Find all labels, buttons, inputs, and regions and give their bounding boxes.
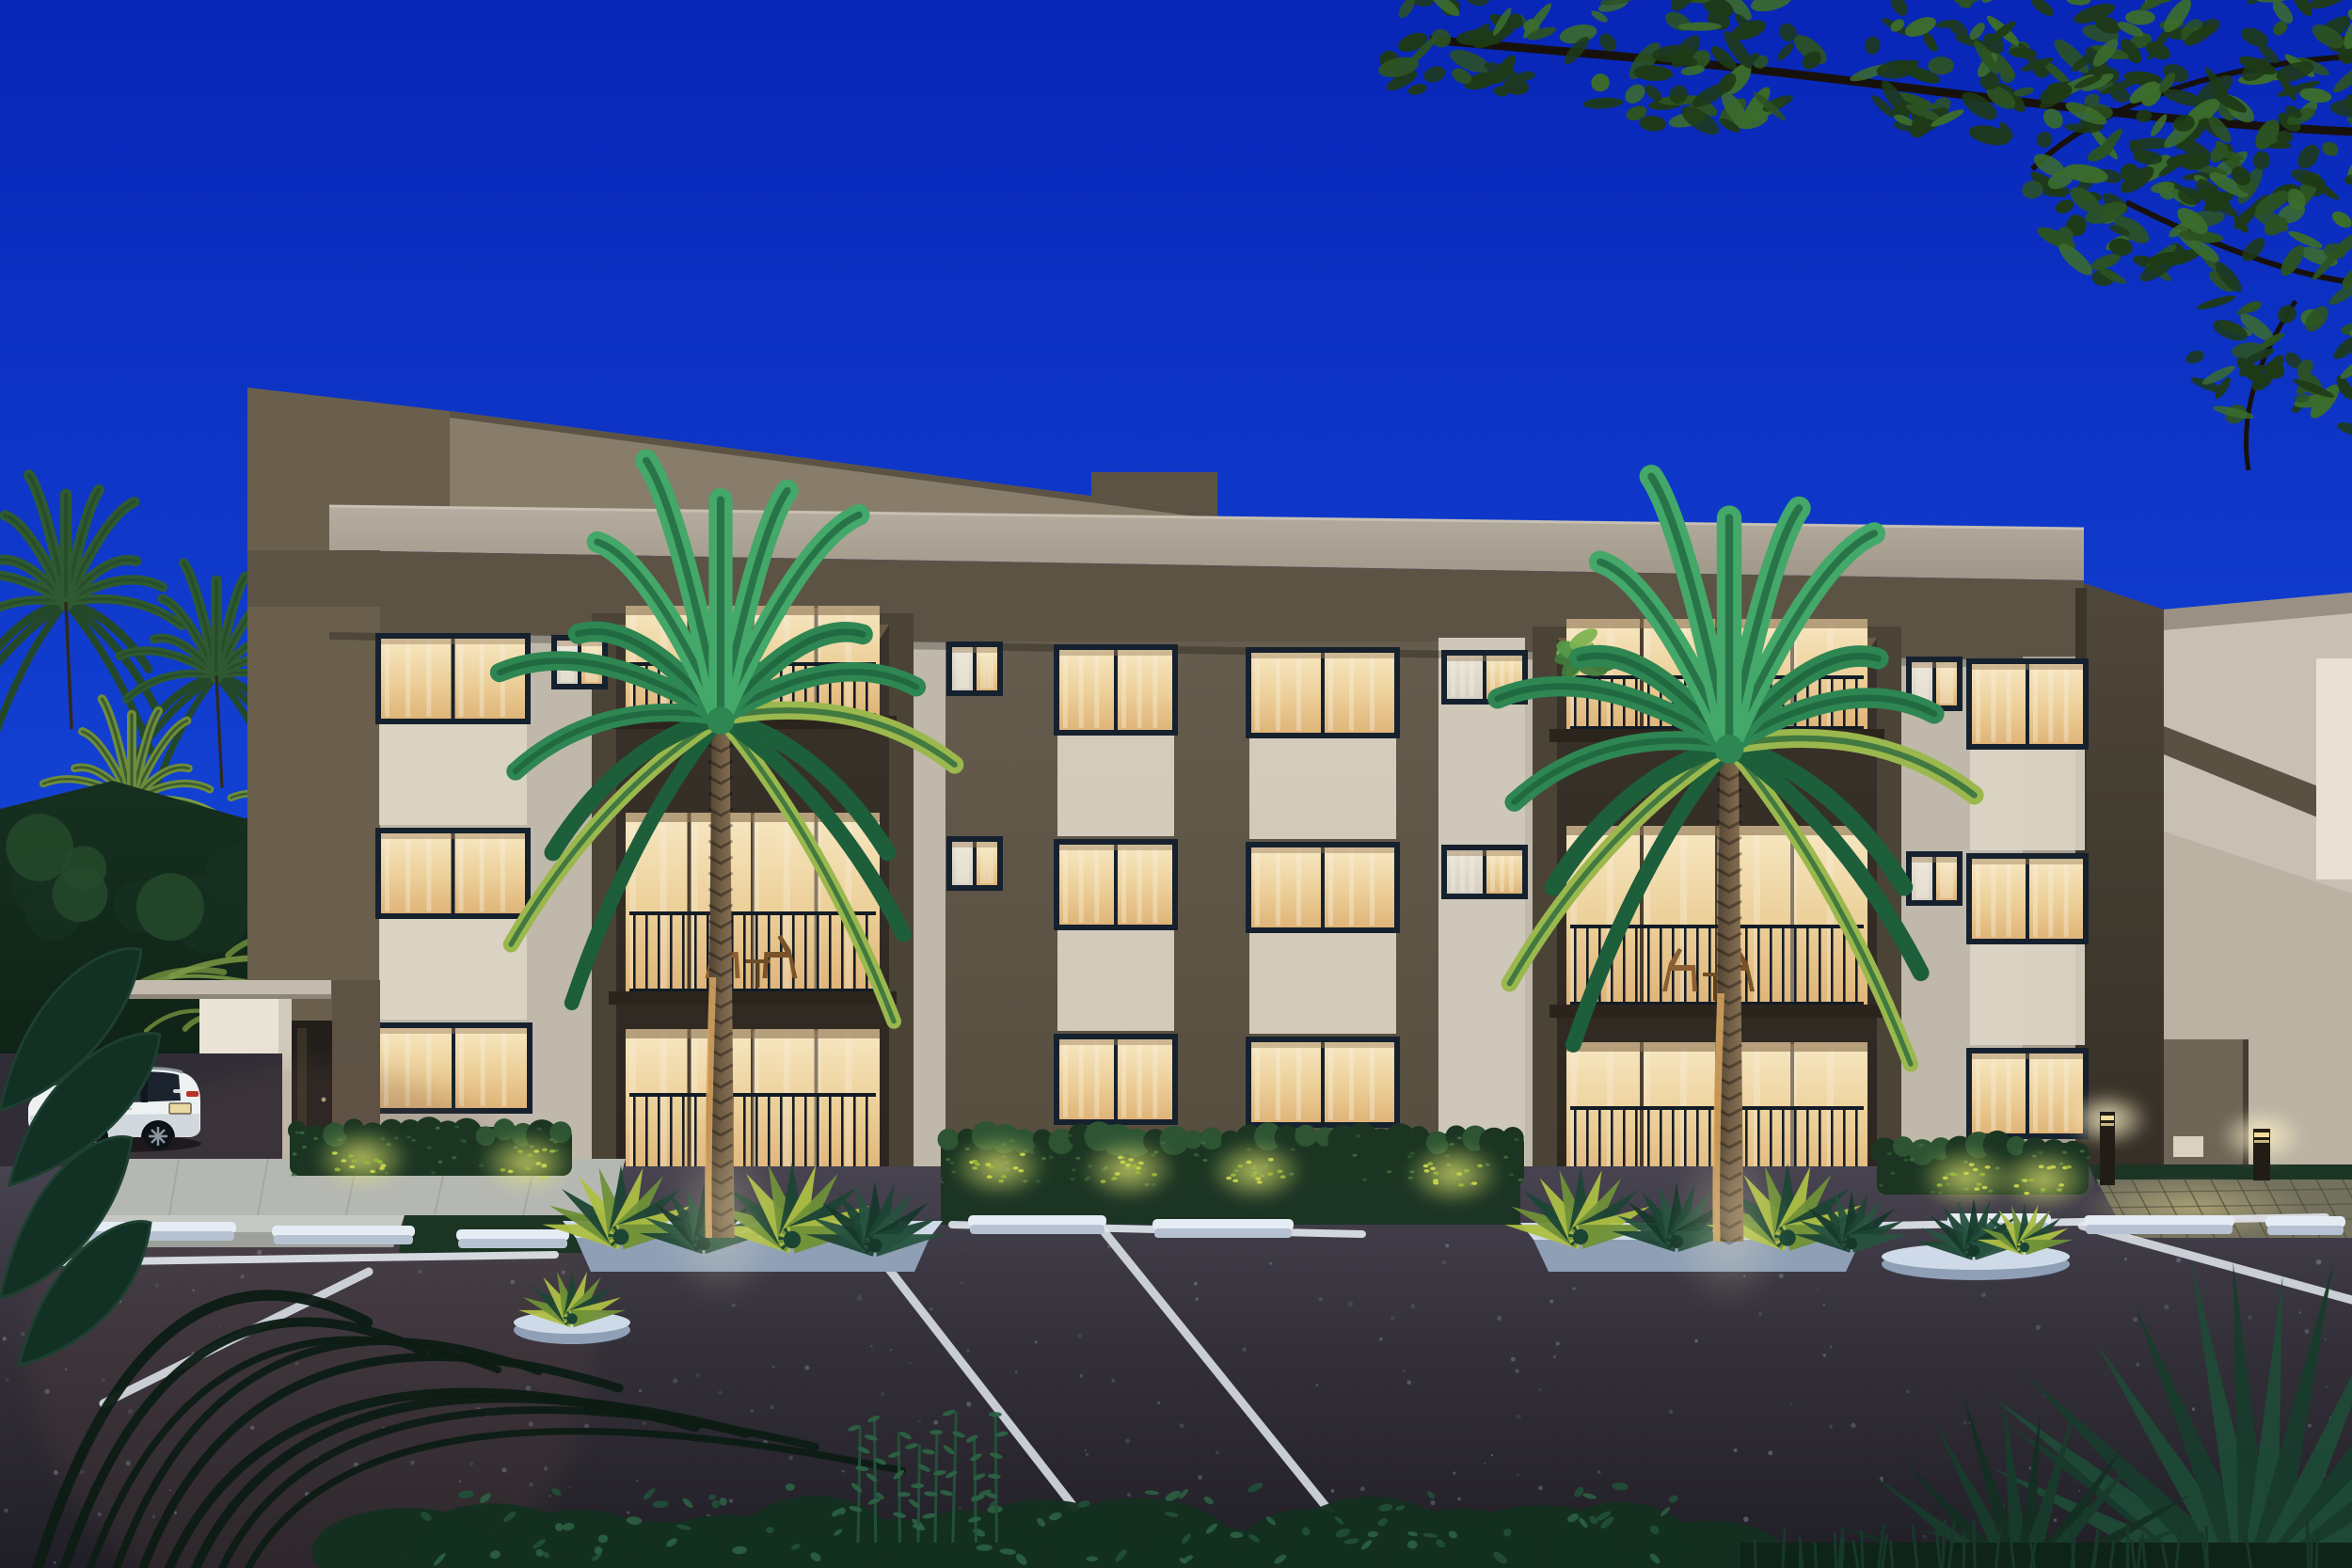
asphalt-speckle xyxy=(5,1377,8,1381)
door-mullion xyxy=(1640,826,1644,1005)
asphalt-speckle xyxy=(54,1561,56,1564)
asphalt-speckle xyxy=(2054,1518,2057,1521)
window-pane xyxy=(1251,1042,1321,1122)
asphalt-speckle xyxy=(2325,1338,2328,1341)
asphalt-speckle xyxy=(54,1470,58,1475)
asphalt-speckle xyxy=(1880,1477,1883,1481)
window-mullion xyxy=(973,647,977,690)
curtain-streak xyxy=(1276,849,1280,926)
curtain-streak xyxy=(1079,1041,1084,1117)
asphalt-speckle xyxy=(696,1373,700,1377)
undergrowth-clump xyxy=(6,814,73,881)
grass-blade xyxy=(2206,1526,2207,1568)
hedge-leaf xyxy=(1202,1159,1207,1162)
asphalt-speckle xyxy=(80,1470,85,1475)
asphalt-speckle xyxy=(1410,1304,1415,1308)
asphalt-speckle xyxy=(1402,1370,1405,1372)
lit-leaf xyxy=(351,1159,357,1163)
car-license-plate xyxy=(169,1103,191,1114)
balcony-railing-bar xyxy=(645,1096,648,1170)
hedge-leaf xyxy=(1457,1136,1462,1139)
lit-leaf xyxy=(1976,1182,1981,1186)
lit-leaf xyxy=(1974,1187,1979,1191)
hedge-leaf xyxy=(1913,1151,1917,1154)
asphalt-speckle xyxy=(732,1304,736,1307)
asphalt-speckle xyxy=(789,1456,793,1460)
asphalt-speckle xyxy=(102,1378,105,1382)
curtain-streak xyxy=(1370,849,1375,926)
balcony-railing-bar xyxy=(841,914,844,990)
hedge-bump xyxy=(1295,1125,1317,1148)
curtain-streak xyxy=(1945,859,1949,898)
balcony-railing-bar xyxy=(658,914,660,990)
hedge-leaf xyxy=(1899,1153,1903,1156)
lit-leaf xyxy=(975,1163,980,1166)
window-w-f3 xyxy=(1246,1037,1400,1128)
curtain-streak xyxy=(1451,852,1455,892)
wheel-stop-face xyxy=(970,1225,1104,1234)
lit-leaf xyxy=(535,1162,541,1165)
glass-top-shade xyxy=(626,813,880,822)
asphalt-speckle xyxy=(1111,1379,1115,1383)
window-top-shade xyxy=(380,1028,527,1034)
curtain-streak xyxy=(2048,1055,2053,1132)
curtain-streak xyxy=(985,649,990,689)
spandrel-panel xyxy=(1970,943,2085,1045)
asphalt-speckle xyxy=(126,1461,131,1465)
asphalt-speckle xyxy=(511,1279,516,1284)
lit-leaf xyxy=(1423,1169,1429,1173)
balcony-table-leg xyxy=(756,963,760,988)
asphalt-speckle xyxy=(1077,1334,1082,1338)
asphalt-speckle xyxy=(4,1509,8,1513)
hedge-leaf xyxy=(1352,1154,1357,1157)
lit-leaf xyxy=(2013,1184,2019,1188)
lit-leaf xyxy=(1477,1164,1483,1168)
grass-blade xyxy=(1862,1530,1863,1568)
window-mullion xyxy=(1321,653,1325,733)
curtain-streak xyxy=(2033,1055,2038,1132)
lit-leaf xyxy=(528,1153,533,1157)
balcony-railing-bar xyxy=(1647,927,1650,1003)
balcony-railing-bar xyxy=(866,1096,868,1170)
sprig-leaf xyxy=(898,1492,911,1497)
grass-blade xyxy=(1755,1539,1756,1568)
hedge-bump xyxy=(1871,1137,1899,1164)
hedge-leaf xyxy=(1503,1156,1508,1159)
asphalt-speckle xyxy=(193,1290,195,1291)
lit-leaf xyxy=(1456,1172,1462,1176)
lit-leaf xyxy=(541,1164,547,1167)
curtain-streak xyxy=(426,641,431,717)
grass-blade xyxy=(1963,1532,1964,1568)
balcony-railing-bar xyxy=(829,914,832,990)
curtain-streak xyxy=(480,835,485,911)
lit-leaf xyxy=(501,1168,506,1172)
asphalt-speckle xyxy=(21,1332,25,1337)
lit-leaf xyxy=(2058,1183,2064,1187)
window-mullion xyxy=(1321,1042,1325,1122)
window-w-i2 xyxy=(1966,853,2089,944)
balcony-railing-bar xyxy=(780,1096,783,1170)
curtain-streak xyxy=(964,649,969,689)
asphalt-speckle xyxy=(636,1480,638,1481)
asphalt-speckle xyxy=(44,1389,49,1394)
lit-leaf xyxy=(348,1154,354,1158)
lit-leaf xyxy=(1135,1171,1140,1175)
hedge-uplight-glow xyxy=(1207,1139,1305,1203)
asphalt-speckle xyxy=(842,1470,845,1473)
window-w-i1 xyxy=(1966,658,2089,750)
hedge-leaf xyxy=(537,1128,542,1131)
grass-blade xyxy=(1800,1540,1801,1568)
hedge-leaf xyxy=(1518,1179,1523,1181)
window-mullion xyxy=(1483,656,1486,699)
hedge-leaf xyxy=(411,1139,416,1142)
grass-blade xyxy=(1815,1543,1816,1568)
lit-leaf xyxy=(1120,1161,1125,1164)
curtain-streak xyxy=(1976,861,1980,937)
asphalt-speckle xyxy=(169,1489,171,1491)
asphalt-speckle xyxy=(1515,1369,1519,1373)
asphalt-speckle xyxy=(1195,1298,1198,1301)
window-pane xyxy=(455,639,526,719)
asphalt-speckle xyxy=(966,1402,971,1406)
window-top-shade xyxy=(1059,650,1172,656)
fan-palm-base xyxy=(1846,1238,1857,1249)
asphalt-speckle xyxy=(2036,1324,2041,1329)
window-mullion xyxy=(1932,857,1936,900)
balcony-railing-bar xyxy=(633,1096,636,1170)
balcony-railing-bar xyxy=(670,1096,673,1170)
undergrowth-clump xyxy=(136,873,204,941)
asphalt-speckle xyxy=(1391,1315,1395,1320)
car-taillight xyxy=(186,1091,199,1097)
lit-leaf xyxy=(1001,1175,1007,1179)
lit-leaf xyxy=(972,1160,977,1164)
asphalt-speckle xyxy=(2124,1258,2127,1260)
lit-leaf xyxy=(2028,1179,2034,1182)
curtain-streak xyxy=(1094,1041,1099,1117)
lit-leaf xyxy=(549,1149,555,1153)
window-pane xyxy=(1251,847,1321,927)
window-mullion xyxy=(452,833,455,913)
curtain-streak xyxy=(2064,861,2069,937)
window-top-shade xyxy=(1059,1039,1172,1045)
window-pane xyxy=(1325,653,1394,733)
asphalt-speckle xyxy=(857,1295,863,1301)
balcony-railing-bar xyxy=(1806,927,1809,1003)
balcony-railing-bar xyxy=(645,914,648,990)
window-w-a2 xyxy=(375,828,531,919)
bollard-lit-band xyxy=(2254,1132,2269,1137)
curtain-fold xyxy=(784,815,790,990)
asphalt-speckle xyxy=(1330,1489,1334,1493)
curtain-streak xyxy=(989,844,993,883)
balcony-railing-bar xyxy=(817,914,819,990)
lit-leaf xyxy=(332,1151,338,1155)
window-w-d2 xyxy=(946,836,1003,891)
asphalt-speckle xyxy=(804,1366,809,1370)
glass-top-shade xyxy=(626,1029,880,1038)
curtain-streak xyxy=(1094,847,1099,923)
lit-leaf xyxy=(541,1176,547,1180)
palm-crown-core xyxy=(1715,735,1744,764)
lit-leaf xyxy=(1020,1153,1025,1157)
asphalt-speckle xyxy=(1316,1384,1318,1386)
balcony-railing-bar xyxy=(1574,927,1577,1003)
lit-leaf xyxy=(1257,1180,1263,1184)
curtain-streak xyxy=(1948,664,1953,704)
asphalt-speckle xyxy=(1319,1297,1324,1302)
lit-leaf xyxy=(1427,1162,1433,1165)
hedge-leaf xyxy=(1879,1184,1883,1187)
hedge-uplight-glow xyxy=(950,1134,1048,1198)
lit-leaf xyxy=(1280,1175,1286,1179)
undergrowth-clump xyxy=(53,866,108,922)
bollard-lit-band xyxy=(2101,1116,2114,1120)
spandrel-panel xyxy=(1970,749,2085,850)
curtain-streak xyxy=(1976,1055,1980,1132)
balcony-railing-bar xyxy=(804,1096,807,1170)
balcony-slab xyxy=(609,991,897,1005)
asphalt-speckle xyxy=(584,1423,589,1428)
neighbor-white-wall xyxy=(2316,658,2352,879)
asphalt-speckle xyxy=(1572,1287,1575,1290)
curtain-streak xyxy=(459,835,464,911)
fan-palm-base xyxy=(2020,1243,2029,1252)
asphalt-speckle xyxy=(1963,1420,1967,1425)
curtain-streak xyxy=(426,835,431,911)
lit-leaf xyxy=(2039,1165,2044,1169)
asphalt-speckle xyxy=(1851,1423,1856,1429)
lit-leaf xyxy=(1985,1165,1991,1169)
curtain-streak xyxy=(1470,852,1474,892)
curtain-streak xyxy=(1940,859,1945,898)
asphalt-speckle xyxy=(469,1462,473,1465)
curtain-streak xyxy=(1255,1044,1260,1120)
curtain-streak xyxy=(2007,666,2011,742)
curtain-streak xyxy=(1063,1041,1068,1117)
lit-leaf xyxy=(1132,1164,1137,1168)
window-top-shade xyxy=(1059,845,1172,850)
hedge-bump xyxy=(1200,1127,1223,1149)
lit-leaf xyxy=(1128,1158,1134,1162)
curtain-streak xyxy=(2048,666,2053,742)
lit-leaf xyxy=(1246,1161,1251,1164)
curtain-streak xyxy=(1121,652,1126,728)
hedge-leaf xyxy=(437,1161,442,1164)
asphalt-speckle xyxy=(1830,1346,1832,1348)
curtain-streak xyxy=(1328,849,1333,926)
asphalt-speckle xyxy=(1269,1262,1272,1265)
asphalt-speckle xyxy=(2248,1316,2251,1320)
hedge-leaf xyxy=(1904,1159,1909,1162)
lit-leaf xyxy=(2046,1166,2052,1170)
curtain-streak xyxy=(1152,1041,1157,1117)
curtain-streak xyxy=(1470,657,1474,697)
asphalt-speckle xyxy=(881,1392,885,1397)
curtain-streak xyxy=(481,1030,485,1106)
lit-leaf xyxy=(1458,1183,1464,1187)
hedge-leaf xyxy=(1362,1179,1367,1181)
asphalt-speckle xyxy=(1823,1304,1825,1306)
asphalt-speckle xyxy=(890,1349,893,1352)
hedge-leaf xyxy=(1910,1158,1915,1161)
lit-leaf xyxy=(1138,1162,1144,1165)
curtain-streak xyxy=(1137,1041,1142,1117)
curtain-streak xyxy=(1976,666,1980,742)
asphalt-speckle xyxy=(526,1386,532,1391)
asphalt-speckle xyxy=(1829,1425,1833,1429)
asphalt-speckle xyxy=(2164,1305,2169,1309)
hedge-leaf xyxy=(1356,1134,1360,1137)
asphalt-speckle xyxy=(959,1507,961,1510)
asphalt-speckle xyxy=(1538,1388,1541,1391)
curtain-streak xyxy=(1509,852,1514,892)
window-top-shade xyxy=(381,639,525,644)
curtain-streak xyxy=(1296,1044,1301,1120)
lit-leaf xyxy=(2024,1192,2029,1196)
window-top-shade xyxy=(1447,850,1522,856)
lit-leaf xyxy=(377,1160,383,1164)
window-mullion xyxy=(2026,1053,2029,1133)
asphalt-speckle xyxy=(1538,1486,1543,1491)
fan-palm-base xyxy=(1968,1245,1979,1257)
balcony-railing-bar xyxy=(817,1096,819,1170)
asphalt-speckle xyxy=(544,1466,548,1470)
balcony-railing-bar xyxy=(768,1096,771,1170)
door-mullion xyxy=(688,813,691,991)
asphalt-speckle xyxy=(930,1307,933,1311)
lit-leaf xyxy=(1430,1166,1436,1170)
lit-leaf xyxy=(2066,1165,2072,1169)
hedge-leaf xyxy=(1887,1152,1892,1155)
asphalt-speckle xyxy=(1669,1410,1674,1415)
curtain-streak xyxy=(385,835,389,911)
hedge-leaf xyxy=(460,1139,465,1142)
curtain-streak xyxy=(1370,1044,1375,1120)
curtain-streak xyxy=(1991,666,1995,742)
lit-leaf xyxy=(1231,1173,1236,1177)
curtain-streak xyxy=(2033,666,2038,742)
asphalt-speckle xyxy=(910,1362,912,1364)
asphalt-speckle xyxy=(1694,1339,1698,1343)
hedge-leaf xyxy=(1067,1134,1072,1137)
curtain-streak xyxy=(1137,652,1142,728)
curtain-streak xyxy=(956,649,961,689)
asphalt-speckle xyxy=(1597,1471,1600,1474)
hedge-leaf xyxy=(1919,1144,1924,1147)
balcony-railing-bar xyxy=(682,914,685,990)
entry-canopy-slab-shadow xyxy=(129,994,331,999)
window-top-shade xyxy=(1912,857,1957,863)
balcony-railing-bar xyxy=(633,914,636,990)
asphalt-speckle xyxy=(218,1326,220,1328)
lit-leaf xyxy=(1226,1177,1232,1180)
hedge-leaf xyxy=(1514,1138,1518,1141)
asphalt-speckle xyxy=(1817,1289,1819,1291)
bollard-lit-band xyxy=(2101,1123,2114,1126)
balcony-railing-bar xyxy=(1831,927,1834,1003)
lit-leaf xyxy=(1943,1177,1948,1180)
asphalt-speckle xyxy=(65,1369,67,1370)
asphalt-speckle xyxy=(98,1513,102,1516)
window-mullion xyxy=(1114,845,1118,925)
asphalt-speckle xyxy=(643,1421,645,1424)
balcony-railing-bar xyxy=(743,914,746,990)
palm-crown-core xyxy=(707,707,734,735)
window-pane xyxy=(381,833,452,913)
asphalt-speckle xyxy=(1430,1500,1435,1505)
balcony-railing-top-rail xyxy=(629,1093,876,1097)
curtain-streak xyxy=(1296,655,1301,731)
hedge-leaf xyxy=(2086,1156,2090,1159)
hedge-leaf xyxy=(302,1146,307,1148)
curtain-streak xyxy=(1079,847,1084,923)
curtain-streak xyxy=(1152,652,1157,728)
curtain-streak xyxy=(980,649,985,689)
curtain-streak xyxy=(1991,1055,1995,1132)
window-mullion xyxy=(1932,662,1936,705)
lit-leaf xyxy=(364,1161,370,1164)
asphalt-speckle xyxy=(2316,1259,2322,1265)
asphalt-speckle xyxy=(639,1389,642,1392)
curtain-streak xyxy=(1349,849,1354,926)
hedge-leaf xyxy=(1195,1154,1200,1157)
shrub-sprig xyxy=(974,1436,976,1543)
balcony-railing-bar xyxy=(792,1096,795,1170)
window-pane xyxy=(1325,847,1394,927)
left-dark-wall-top-shade xyxy=(247,550,380,607)
balcony-railing-bar xyxy=(1782,927,1785,1003)
hedge-bump xyxy=(288,1121,307,1140)
asphalt-speckle xyxy=(1491,1454,1493,1456)
asphalt-speckle xyxy=(627,1512,629,1514)
lit-leaf xyxy=(1115,1172,1120,1176)
hedge-leaf xyxy=(481,1134,485,1137)
asphalt-speckle xyxy=(965,1247,967,1249)
lit-leaf xyxy=(1433,1181,1438,1185)
hedge-leaf xyxy=(436,1127,440,1130)
window-top-shade xyxy=(1972,859,2083,864)
asphalt-speckle xyxy=(772,1366,775,1369)
hedge-leaf xyxy=(1409,1152,1414,1155)
asphalt-speckle xyxy=(1216,1450,1219,1454)
curtain-streak xyxy=(1121,1041,1126,1117)
bollard-light xyxy=(2100,1112,2115,1185)
lit-leaf xyxy=(2041,1188,2046,1192)
balcony-railing-bar xyxy=(658,1096,660,1170)
sprig-leaf xyxy=(989,1412,1002,1417)
window-pane xyxy=(1251,653,1321,733)
curtain-streak xyxy=(2064,666,2069,742)
asphalt-speckle xyxy=(1517,1415,1521,1419)
wheel-stop-face xyxy=(1154,1228,1292,1238)
asphalt-speckle xyxy=(295,1362,299,1366)
hedge-uplight-glow xyxy=(313,1127,411,1191)
window-top-shade xyxy=(1972,1053,2083,1059)
window-mullion xyxy=(1483,850,1486,894)
curtain-fold xyxy=(784,1031,790,1170)
grass-blade xyxy=(2316,1528,2317,1568)
asphalt-speckle xyxy=(1497,1316,1502,1321)
balcony-railing-bar xyxy=(1843,927,1846,1003)
asphalt-speckle xyxy=(562,1271,565,1275)
lit-leaf xyxy=(370,1170,375,1174)
asphalt-speckle xyxy=(1243,1348,1247,1352)
asphalt-speckle xyxy=(1086,1453,1089,1457)
